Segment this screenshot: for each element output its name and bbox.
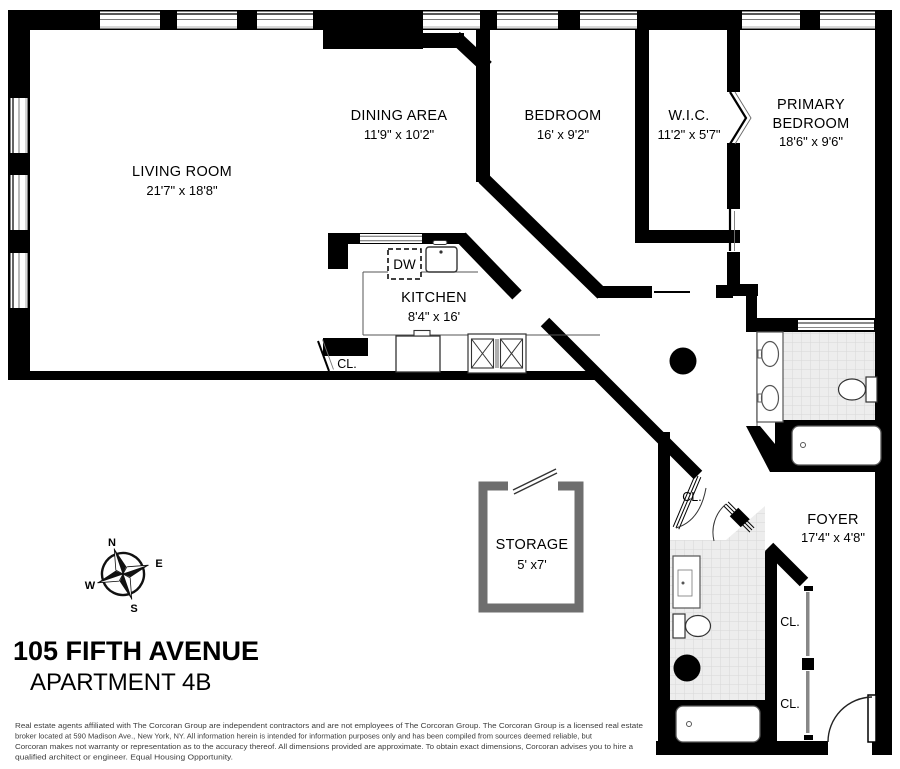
stove-icon	[468, 334, 526, 373]
disclaimer-line-4: qualified architect or engineer. Equal H…	[15, 753, 233, 762]
disclaimer: Real estate agents affiliated with The C…	[15, 721, 643, 762]
compass-north-label: N	[108, 537, 116, 549]
title-block: 105 FIFTH AVENUE APARTMENT 4B	[13, 636, 259, 696]
dishwasher-label: DW	[393, 257, 416, 272]
window-icon	[580, 12, 637, 29]
window-icon	[742, 12, 800, 29]
wall-wic-bottom	[635, 230, 740, 243]
foyer-label: FOYER	[807, 512, 858, 528]
disclaimer-line-3: Corcoran makes not warranty or represent…	[15, 742, 634, 751]
wic-dims: 11'2" x 5'7"	[657, 127, 720, 142]
storage-dims: 5' x7'	[517, 557, 547, 572]
floor-plan-drawing: N E S W LIVING ROOM 21'7" x 18'8" DINING…	[0, 0, 900, 769]
foyer-dims: 17'4" x 4'8"	[801, 530, 865, 545]
kitchen-cabinet	[396, 331, 440, 373]
apartment-title: APARTMENT 4B	[30, 669, 211, 696]
entry-door-icon	[828, 695, 876, 755]
living-room-label: LIVING ROOM	[132, 164, 232, 180]
hall-closet-label: CL.	[682, 490, 701, 504]
wall-soffit	[323, 30, 423, 49]
kitchen-label: KITCHEN	[401, 290, 467, 306]
bathroom1-toilet-icon	[839, 377, 878, 402]
storage-label: STORAGE	[496, 537, 569, 553]
primary-bedroom-label-1: PRIMARY	[777, 97, 845, 113]
window-icon	[177, 12, 237, 29]
compass-rose-icon: N E S W	[85, 537, 163, 615]
kitchen-dims: 8'4" x 16'	[408, 309, 460, 324]
dining-area-dims: 11'9" x 10'2"	[364, 127, 435, 142]
bathroom1-sink-1-icon	[762, 342, 779, 367]
wic-label: W.I.C.	[668, 108, 709, 124]
bathroom1-tile-floor	[783, 332, 875, 420]
bathroom2-bathtub-icon	[676, 706, 760, 742]
wall-lower-left	[658, 432, 670, 755]
wall-kitchen-diagonal	[461, 237, 517, 295]
dining-area-label: DINING AREA	[351, 108, 448, 124]
floor-plan-page: N E S W LIVING ROOM 21'7" x 18'8" DINING…	[0, 0, 900, 769]
window-icon	[820, 12, 875, 29]
living-room-dims: 21'7" x 18'8"	[146, 183, 218, 198]
bedroom-dims: 16' x 9'2"	[537, 127, 590, 142]
window-icon	[423, 12, 480, 29]
primary-bedroom-label-2: BEDROOM	[772, 116, 849, 132]
window-icon	[11, 175, 28, 230]
corridor-closet-sliders	[802, 586, 814, 740]
disclaimer-line-1: Real estate agents affiliated with The C…	[15, 721, 643, 730]
sliding-door-icon	[806, 592, 810, 656]
wall-bedroom-wic	[635, 30, 649, 243]
corridor-closet-label-1: CL.	[780, 615, 799, 629]
kitchen-pass-window-icon	[360, 234, 422, 243]
window-column-left	[11, 98, 28, 308]
compass-west-label: W	[85, 580, 96, 592]
bathroom1-sink-2-icon	[762, 386, 779, 411]
bathroom2-toilet-icon	[673, 614, 711, 638]
window-icon	[11, 98, 28, 153]
bedroom-label: BEDROOM	[524, 108, 601, 124]
compass-south-label: S	[130, 603, 137, 615]
kitchen-sink-icon	[426, 241, 457, 273]
compass-east-label: E	[155, 558, 162, 570]
wall-dining-bedroom	[476, 30, 490, 182]
sliding-door-icon	[806, 671, 810, 733]
disclaimer-line-2: broker located at 590 Madison Ave., New …	[15, 732, 593, 741]
building-title: 105 FIFTH AVENUE	[13, 636, 259, 666]
window-icon	[497, 12, 558, 29]
wall-wic-right-lower	[727, 143, 740, 209]
wall-wic-right-upper	[727, 30, 740, 92]
bathroom1-window-icon	[798, 320, 874, 330]
window-icon	[11, 253, 28, 308]
bathroom1-bathtub-icon	[792, 426, 881, 465]
wall-bath2-corridor	[765, 552, 777, 755]
kitchen-closet-label: CL.	[337, 357, 356, 371]
column-bathroom2	[674, 655, 701, 682]
wic-bifold-door-icon	[730, 92, 751, 144]
corridor-closet-label-2: CL.	[780, 697, 799, 711]
bathroom2-vanity-icon	[673, 556, 700, 608]
column-hallway	[670, 348, 697, 375]
window-icon	[100, 12, 160, 29]
primary-bedroom-dims: 18'6" x 9'6"	[779, 134, 843, 149]
window-icon	[257, 12, 313, 29]
wall-hall-diagonal-1	[545, 322, 698, 475]
